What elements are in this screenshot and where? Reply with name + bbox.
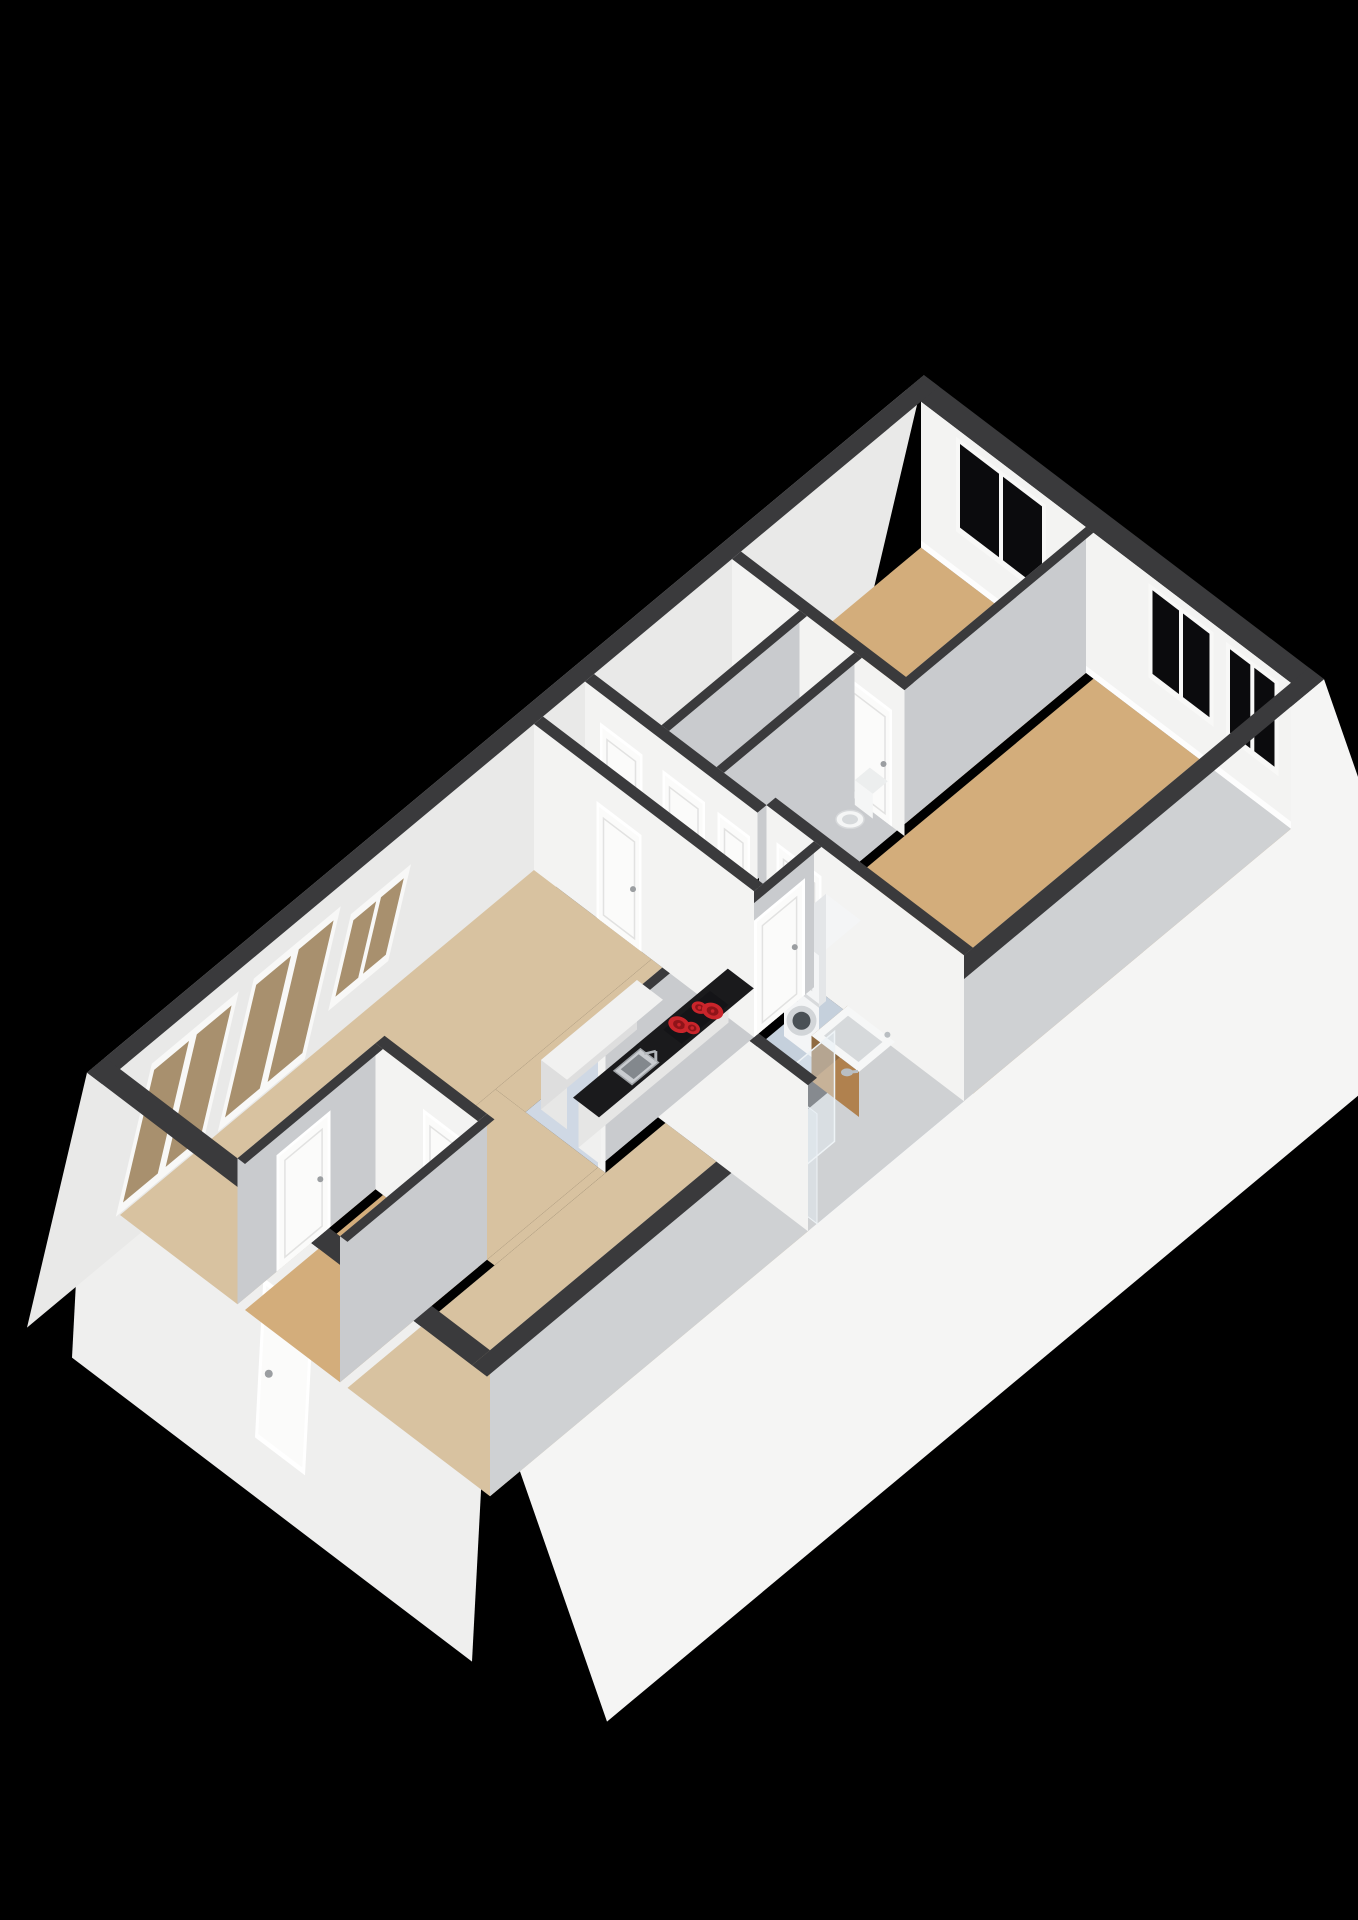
floorplan-canvas [0, 0, 1358, 1920]
burner-dot-icon [690, 1026, 694, 1030]
washer-door-glass-icon [793, 1012, 811, 1030]
living-hall-door-handle-icon [630, 886, 636, 892]
floorplan-3d-render [0, 0, 1358, 1920]
burner-dot-icon [698, 1006, 702, 1010]
shower-head-icon [841, 1068, 853, 1076]
bedroom1-door-handle-icon [881, 761, 887, 767]
toilet-seat [842, 814, 858, 824]
vanity-faucet-icon [884, 1032, 890, 1038]
burner-dot-icon [711, 1009, 715, 1013]
entrance-door-handle-icon [317, 1176, 323, 1182]
burner-dot-icon [677, 1023, 681, 1027]
front-door-handle-icon [265, 1370, 273, 1378]
bathroom-door-handle-icon [792, 944, 798, 950]
